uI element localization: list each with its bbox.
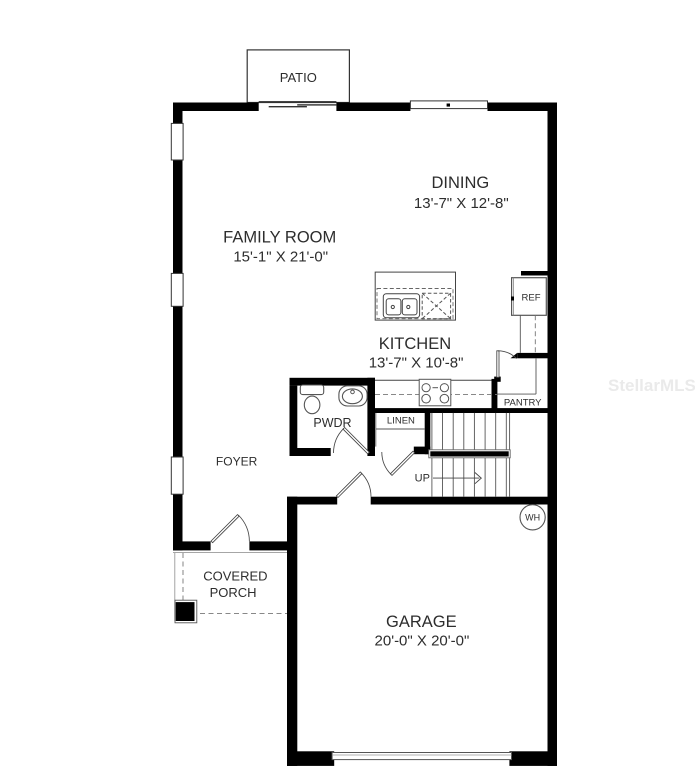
svg-text:UP: UP	[415, 473, 430, 485]
svg-text:GARAGE: GARAGE	[386, 613, 457, 631]
svg-text:FOYER: FOYER	[216, 454, 258, 468]
svg-text:20'-0" X 20'-0": 20'-0" X 20'-0"	[375, 632, 470, 649]
svg-text:DINING: DINING	[432, 174, 490, 192]
svg-text:PWDR: PWDR	[313, 416, 351, 430]
svg-text:13'-7" X 10'-8": 13'-7" X 10'-8"	[369, 354, 464, 371]
svg-text:13'-7" X 12'-8": 13'-7" X 12'-8"	[414, 195, 509, 212]
svg-text:COVERED: COVERED	[203, 569, 267, 584]
svg-text:FAMILY ROOM: FAMILY ROOM	[223, 228, 336, 246]
svg-text:KITCHEN: KITCHEN	[379, 335, 451, 353]
svg-text:REF: REF	[522, 292, 541, 303]
svg-text:LINEN: LINEN	[387, 416, 415, 427]
svg-text:WH: WH	[525, 513, 540, 523]
svg-text:PATIO: PATIO	[280, 70, 317, 85]
svg-text:15'-1" X 21'-0": 15'-1" X 21'-0"	[233, 248, 328, 265]
svg-text:PANTRY: PANTRY	[504, 398, 542, 409]
svg-text:PORCH: PORCH	[210, 585, 257, 600]
svg-text:StellarMLS: StellarMLS	[608, 376, 695, 395]
